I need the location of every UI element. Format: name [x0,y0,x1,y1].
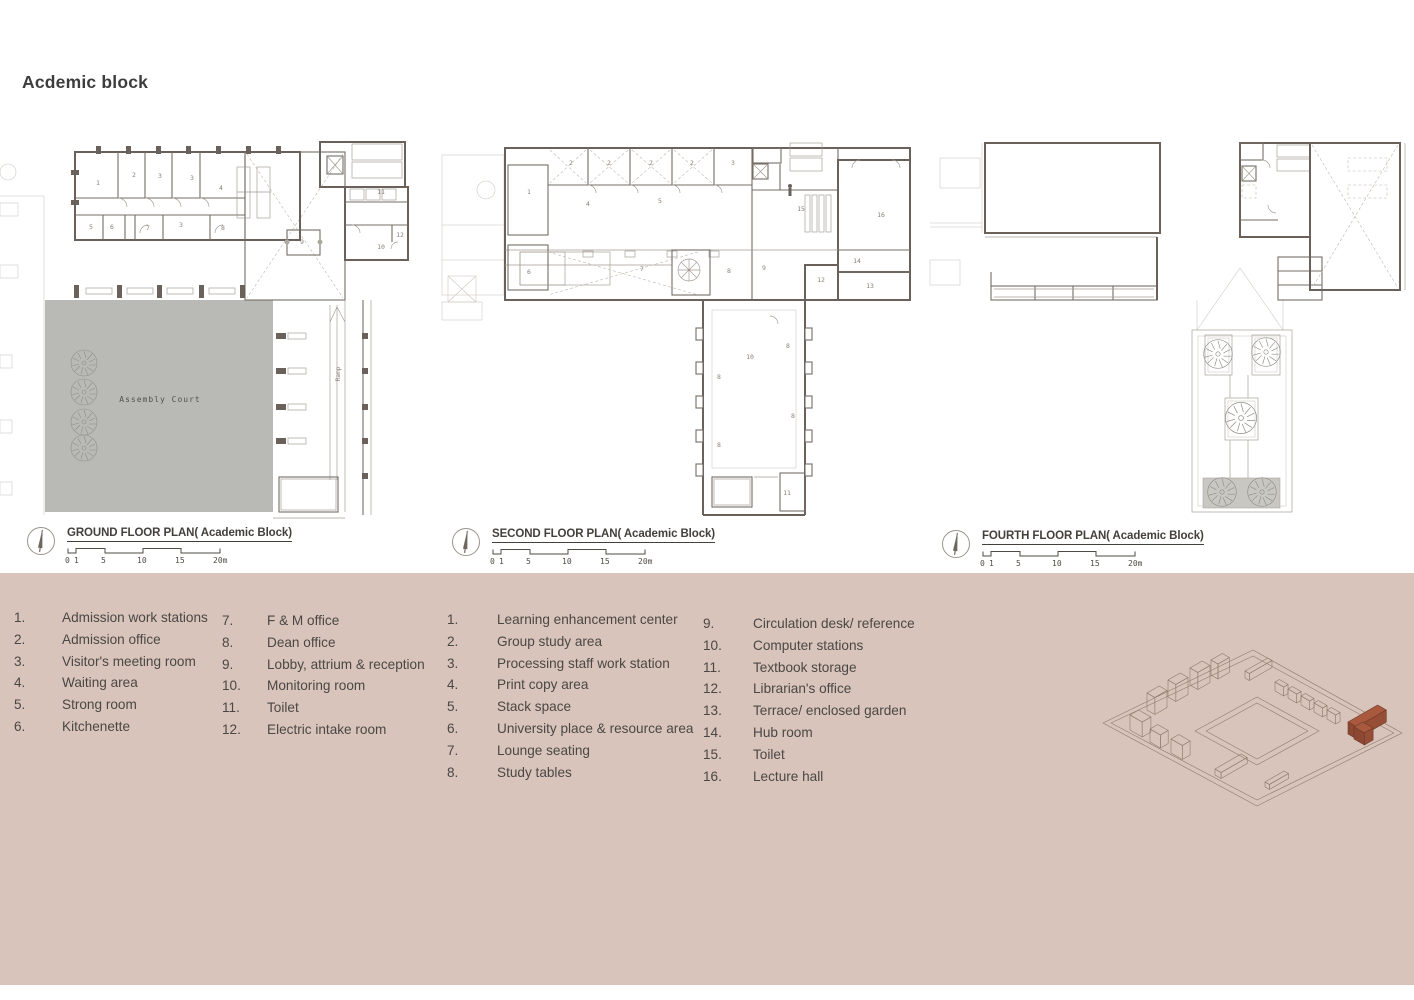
plan-title: FOURTH FLOOR PLAN( Academic Block) [982,530,1204,545]
legend-text: Librarian's office [753,681,851,696]
room-label: 11 [783,489,791,497]
ground-floor-caption: GROUND FLOOR PLAN( Academic Block) 0 1 5… [23,523,292,569]
room-label: 2 [569,159,573,167]
scale-tick: 0 [65,556,70,565]
second-floor-plan-drawing: 122223456789151614121310888811 [440,130,925,525]
room-label: 2 [649,159,653,167]
second-floor-caption: SECOND FLOOR PLAN( Academic Block) 0 1 5… [448,524,715,570]
stair-icon [790,143,822,156]
legend-number: 3. [447,656,497,671]
room-label: 2 [690,159,694,167]
north-arrow-icon [448,524,484,560]
legend-row: 5.Strong room [14,697,208,719]
legend-row: 1.Learning enhancement center [447,612,693,634]
context-lines [930,143,982,285]
legend-number: 4. [14,675,62,690]
legend-text: F & M office [267,613,339,628]
room-label: 12 [396,231,404,239]
stair-icon [279,477,338,512]
scale-tick: 10 [1052,559,1062,568]
room-label: 5 [89,223,93,231]
legend-text: Lobby, attrium & reception [267,657,425,672]
legend-text: Monitoring room [267,678,365,693]
assembly-court [45,300,273,512]
legend-text: Waiting area [62,675,138,690]
context-lines [0,164,44,515]
legend-number: 1. [14,610,62,625]
scale-tick: 0 [490,557,495,566]
legend-text: Circulation desk/ reference [753,616,915,631]
legend-text: Terrace/ enclosed garden [753,703,906,718]
legend-number: 10. [222,678,267,693]
legend-row: 4.Waiting area [14,675,208,697]
stair-icon [257,167,270,218]
legend-row: 3.Processing staff work station [447,656,693,678]
fourth-floor-caption: FOURTH FLOOR PLAN( Academic Block) 0 1 5… [938,526,1204,572]
room-label: 1 [96,179,100,187]
legend-row: 10.Computer stations [703,638,915,660]
legend-text: Study tables [497,765,572,780]
legend-row: 3.Visitor's meeting room [14,654,208,676]
legend-number: 15. [703,747,753,762]
legend-row: 10.Monitoring room [222,678,425,700]
legend-number: 16. [703,769,753,784]
legend-text: Kitchenette [62,719,130,734]
scale-bar: 0 1 5 10 15 20m [492,546,662,570]
legend-row: 12.Librarian's office [703,681,915,703]
page-title: Acdemic block [22,72,148,93]
legend-row: 8.Dean office [222,635,425,657]
legend-number: 7. [447,743,497,758]
legend-text: Electric intake room [267,722,386,737]
legend-row: 1.Admission work stations [14,610,208,632]
room-label: 3 [158,172,162,180]
toilet-stalls [805,195,831,232]
legend-number: 3. [14,654,62,669]
legend-number: 14. [703,725,753,740]
room-label: 3 [190,174,194,182]
legend-row: 5.Stack space [447,699,693,721]
legend-row: 11.Textbook storage [703,660,915,682]
legend-number: 6. [447,721,497,736]
drawing-sheet: Acdemic block [0,0,1414,1000]
legend-row: 6.University place & resource area [447,721,693,743]
scale-tick: 1 [989,559,994,568]
scale-tick: 10 [562,557,572,566]
fourth-floor-plan-drawing [930,130,1410,525]
room-label: 8 [791,412,795,420]
legend-number: 5. [447,699,497,714]
scale-tick: 5 [1016,559,1021,568]
legend-text: Toilet [753,747,785,762]
stair-icon [352,162,402,178]
scale-bar: 0 1 5 10 15 20m [982,548,1152,572]
legend-row: 2.Admission office [14,632,208,654]
room-label: 2 [132,171,136,179]
room-label: 16 [877,211,885,219]
legend-text: Strong room [62,697,137,712]
legend-number: 11. [703,660,753,675]
scale-tick: 15 [175,556,185,565]
stair-icon [1277,159,1310,171]
room-label: 9 [762,264,766,272]
legend-text: Computer stations [753,638,863,653]
legend-row: 12.Electric intake room [222,722,425,744]
tree-icon [1225,402,1256,433]
legend-number: 5. [14,697,62,712]
north-arrow-icon [23,523,59,559]
scale-tick: 15 [600,557,610,566]
terrace-garden [1192,330,1292,512]
plan-text: Ramp [335,366,342,381]
legend-number: 8. [447,765,497,780]
legend-row: 9.Lobby, attrium & reception [222,657,425,679]
legend-row: 13.Terrace/ enclosed garden [703,703,915,725]
legend-row: 7.F & M office [222,613,425,635]
legend-number: 9. [222,657,267,672]
room-label: 9 [300,238,304,246]
corridor-benches [276,333,306,444]
room-label: 8 [786,342,790,350]
legend-number: 10. [703,638,753,653]
room-label: 6 [110,223,114,231]
room-label: 10 [746,353,754,361]
scale-tick: 1 [499,557,504,566]
room-label: 14 [853,257,861,265]
room-label: 11 [377,188,385,196]
scale-tick: 20m [213,556,227,565]
scale-tick: 20m [1128,559,1142,568]
stair-icon [352,144,402,160]
legend-number: 8. [222,635,267,650]
legend-row: 16.Lecture hall [703,769,915,791]
legend-row: 6.Kitchenette [14,719,208,741]
north-arrow-icon [938,526,974,562]
legend-text: Admission office [62,632,161,647]
room-label: 4 [586,200,590,208]
plan-text: Assembly Court [119,395,200,404]
legend-text: Lounge seating [497,743,590,758]
legend-text: Visitor's meeting room [62,654,196,669]
spiral-stair-icon [678,259,700,281]
room-label: 7 [640,265,644,273]
legend-text: Textbook storage [753,660,857,675]
scale-tick: 5 [101,556,106,565]
room-label: 8 [727,267,731,275]
room-label: 8 [221,224,225,232]
legend-column-library-2: 9.Circulation desk/ reference10.Computer… [703,616,915,790]
legend-column-ground-1: 1.Admission work stations2.Admission off… [14,610,208,741]
room-label: 7 [146,224,150,232]
room-label: 3 [179,221,183,229]
room-label: 8 [717,441,721,449]
plan-title: SECOND FLOOR PLAN( Academic Block) [492,528,715,543]
scale-tick: 1 [74,556,79,565]
legend-number: 2. [447,634,497,649]
legend-text: Learning enhancement center [497,612,678,627]
legend-row: 7.Lounge seating [447,743,693,765]
scale-tick: 0 [980,559,985,568]
legend-number: 12. [222,722,267,737]
plan-title: GROUND FLOOR PLAN( Academic Block) [67,527,292,542]
legend-text: Hub room [753,725,813,740]
legend-text: Dean office [267,635,336,650]
scale-bar: 0 1 5 10 15 20m [67,545,237,569]
legend-number: 2. [14,632,62,647]
person-icon [788,184,792,188]
legend-row: 9.Circulation desk/ reference [703,616,915,638]
legend-row: 15.Toilet [703,747,915,769]
room-label: 8 [717,373,721,381]
legend-number: 12. [703,681,753,696]
room-label: 1 [527,188,531,196]
scale-tick: 20m [638,557,652,566]
legend-row: 2.Group study area [447,634,693,656]
legend-row: 4.Print copy area [447,677,693,699]
room-label: 2 [607,159,611,167]
context-lines [442,155,504,320]
legend-text: Toilet [267,700,299,715]
room-label: 10 [377,243,385,251]
legend-text: Print copy area [497,677,588,692]
stair-icon [790,158,822,171]
legend-number: 11. [222,700,267,715]
legend-text: University place & resource area [497,721,693,736]
room-label: 6 [527,268,531,276]
legend-text: Lecture hall [753,769,823,784]
room-label: 4 [219,184,223,192]
room-label: 12 [817,276,825,284]
legend-text: Admission work stations [62,610,208,625]
legend-number: 4. [447,677,497,692]
tree-icon [1252,338,1281,367]
legend-text: Processing staff work station [497,656,670,671]
ground-floor-plan-drawing: 12334567389111012Assembly CourtRamp [0,130,445,525]
room-label: 15 [797,205,805,213]
legend-row: 8.Study tables [447,765,693,787]
legend-column-ground-2: 7.F & M office8.Dean office9.Lobby, attr… [222,613,425,744]
legend-number: 6. [14,719,62,734]
site-isometric-diagram [1095,635,1414,810]
stair-icon [1277,145,1310,157]
central-court [1195,697,1319,765]
legend-text: Group study area [497,634,602,649]
legend-number: 7. [222,613,267,628]
legend-number: 9. [703,616,753,631]
scale-tick: 5 [526,557,531,566]
scale-tick: 10 [137,556,147,565]
legend-row: 14.Hub room [703,725,915,747]
room-label: 5 [658,197,662,205]
room-label: 13 [866,282,874,290]
room-label: 3 [731,159,735,167]
legend-number: 1. [447,612,497,627]
study-alcoves [696,328,812,476]
legend-column-library-1: 1.Learning enhancement center2.Group stu… [447,612,693,786]
legend-row: 11.Toilet [222,700,425,722]
legend-text: Stack space [497,699,571,714]
stair-icon [237,167,250,218]
stair-icon [712,477,752,507]
legend-number: 13. [703,703,753,718]
scale-tick: 15 [1090,559,1100,568]
